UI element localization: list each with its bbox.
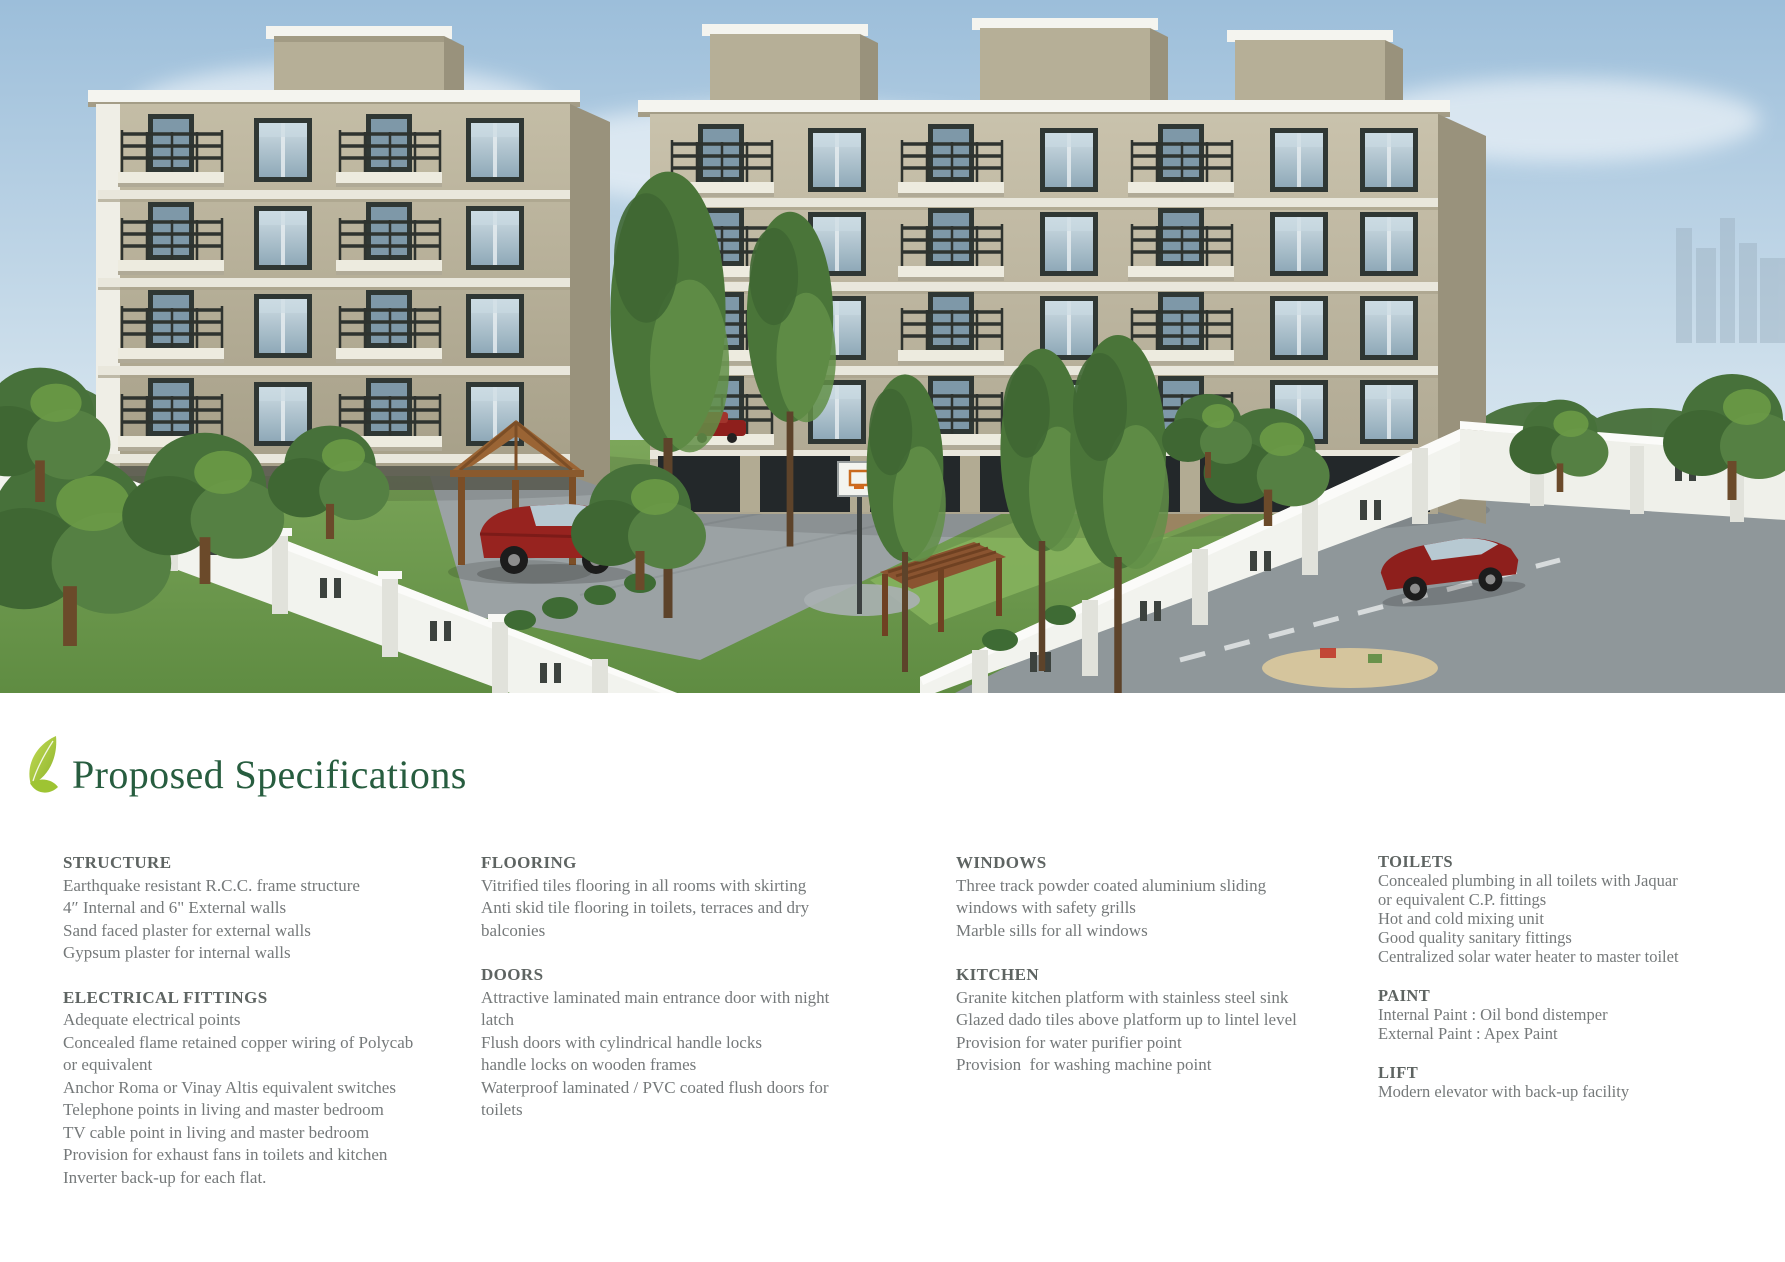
spec-section: TOILETSConcealed plumbing in all toilets… (1378, 852, 1768, 966)
spec-line: Provision for exhaust fans in toilets an… (63, 1144, 473, 1167)
spec-section-title: TOILETS (1378, 852, 1768, 871)
spec-line: External Paint : Apex Paint (1378, 1024, 1768, 1043)
spec-line: Flush doors with cylindrical handle lock… (481, 1032, 881, 1055)
page-title: Proposed Specifications (72, 751, 467, 798)
spec-line: Sand faced plaster for external walls (63, 920, 473, 943)
spec-line: Provision for water purifier point (956, 1032, 1346, 1055)
spec-line: 4″ Internal and 6" External walls (63, 897, 473, 920)
spec-line: Three track powder coated aluminium slid… (956, 875, 1346, 898)
spec-line: Anchor Roma or Vinay Altis equivalent sw… (63, 1077, 473, 1100)
spec-line: Provision for washing machine point (956, 1054, 1346, 1077)
brochure-page: Proposed Specifications STRUCTUREEarthqu… (0, 0, 1785, 1262)
spec-column-windows-kitchen: WINDOWSThree track powder coated alumini… (956, 852, 1346, 1077)
spec-section-title: PAINT (1378, 986, 1768, 1005)
spec-line: Vitrified tiles flooring in all rooms wi… (481, 875, 881, 898)
spec-section-title: KITCHEN (956, 964, 1346, 987)
spec-line: or equivalent (63, 1054, 473, 1077)
spec-section: ELECTRICAL FITTINGSAdequate electrical p… (63, 987, 473, 1190)
spec-line: Anti skid tile flooring in toilets, terr… (481, 897, 881, 920)
spec-section-title: DOORS (481, 964, 881, 987)
spec-line: Granite kitchen platform with stainless … (956, 987, 1346, 1010)
spec-line: Attractive laminated main entrance door … (481, 987, 881, 1010)
spec-section-title: LIFT (1378, 1063, 1768, 1082)
spec-line: Adequate electrical points (63, 1009, 473, 1032)
spec-line: Internal Paint : Oil bond distemper (1378, 1005, 1768, 1024)
spec-line: Concealed plumbing in all toilets with J… (1378, 871, 1768, 890)
spec-section: KITCHENGranite kitchen platform with sta… (956, 964, 1346, 1077)
spec-line: Good quality sanitary fittings (1378, 928, 1768, 947)
spec-line: Gypsum plaster for internal walls (63, 942, 473, 965)
spec-line: Telephone points in living and master be… (63, 1099, 473, 1122)
spec-line: Waterproof laminated / PVC coated flush … (481, 1077, 881, 1100)
hero-rendering (0, 0, 1785, 693)
spec-section-title: FLOORING (481, 852, 881, 875)
leaf-logo-icon (22, 735, 62, 795)
spec-section: FLOORINGVitrified tiles flooring in all … (481, 852, 881, 942)
spec-line: Glazed dado tiles above platform up to l… (956, 1009, 1346, 1032)
spec-column-structure-electrical: STRUCTUREEarthquake resistant R.C.C. fra… (63, 852, 473, 1189)
left-building (88, 26, 610, 490)
spec-section: LIFTModern elevator with back-up facilit… (1378, 1063, 1768, 1101)
spec-line: latch (481, 1009, 881, 1032)
spec-line: TV cable point in living and master bedr… (63, 1122, 473, 1145)
spec-line: Concealed flame retained copper wiring o… (63, 1032, 473, 1055)
spec-section-title: ELECTRICAL FITTINGS (63, 987, 473, 1010)
spec-line: Earthquake resistant R.C.C. frame struct… (63, 875, 473, 898)
spec-section-title: STRUCTURE (63, 852, 473, 875)
spec-column-toilets-paint-lift: TOILETSConcealed plumbing in all toilets… (1378, 852, 1768, 1101)
spec-line: handle locks on wooden frames (481, 1054, 881, 1077)
spec-line: Centralized solar water heater to master… (1378, 947, 1768, 966)
spec-line: Inverter back-up for each flat. (63, 1167, 473, 1190)
spec-column-flooring-doors: FLOORINGVitrified tiles flooring in all … (481, 852, 881, 1122)
spec-section: STRUCTUREEarthquake resistant R.C.C. fra… (63, 852, 473, 965)
spec-line: windows with safety grills (956, 897, 1346, 920)
spec-line: balconies (481, 920, 881, 943)
sand-pit (1262, 648, 1438, 688)
spec-line: Modern elevator with back-up facility (1378, 1082, 1768, 1101)
spec-line: toilets (481, 1099, 881, 1122)
spec-line: or equivalent C.P. fittings (1378, 890, 1768, 909)
spec-section: PAINTInternal Paint : Oil bond distemper… (1378, 986, 1768, 1043)
spec-line: Hot and cold mixing unit (1378, 909, 1768, 928)
spec-section: WINDOWSThree track powder coated alumini… (956, 852, 1346, 942)
spec-section-title: WINDOWS (956, 852, 1346, 875)
spec-line: Marble sills for all windows (956, 920, 1346, 943)
spec-section: DOORSAttractive laminated main entrance … (481, 964, 881, 1122)
